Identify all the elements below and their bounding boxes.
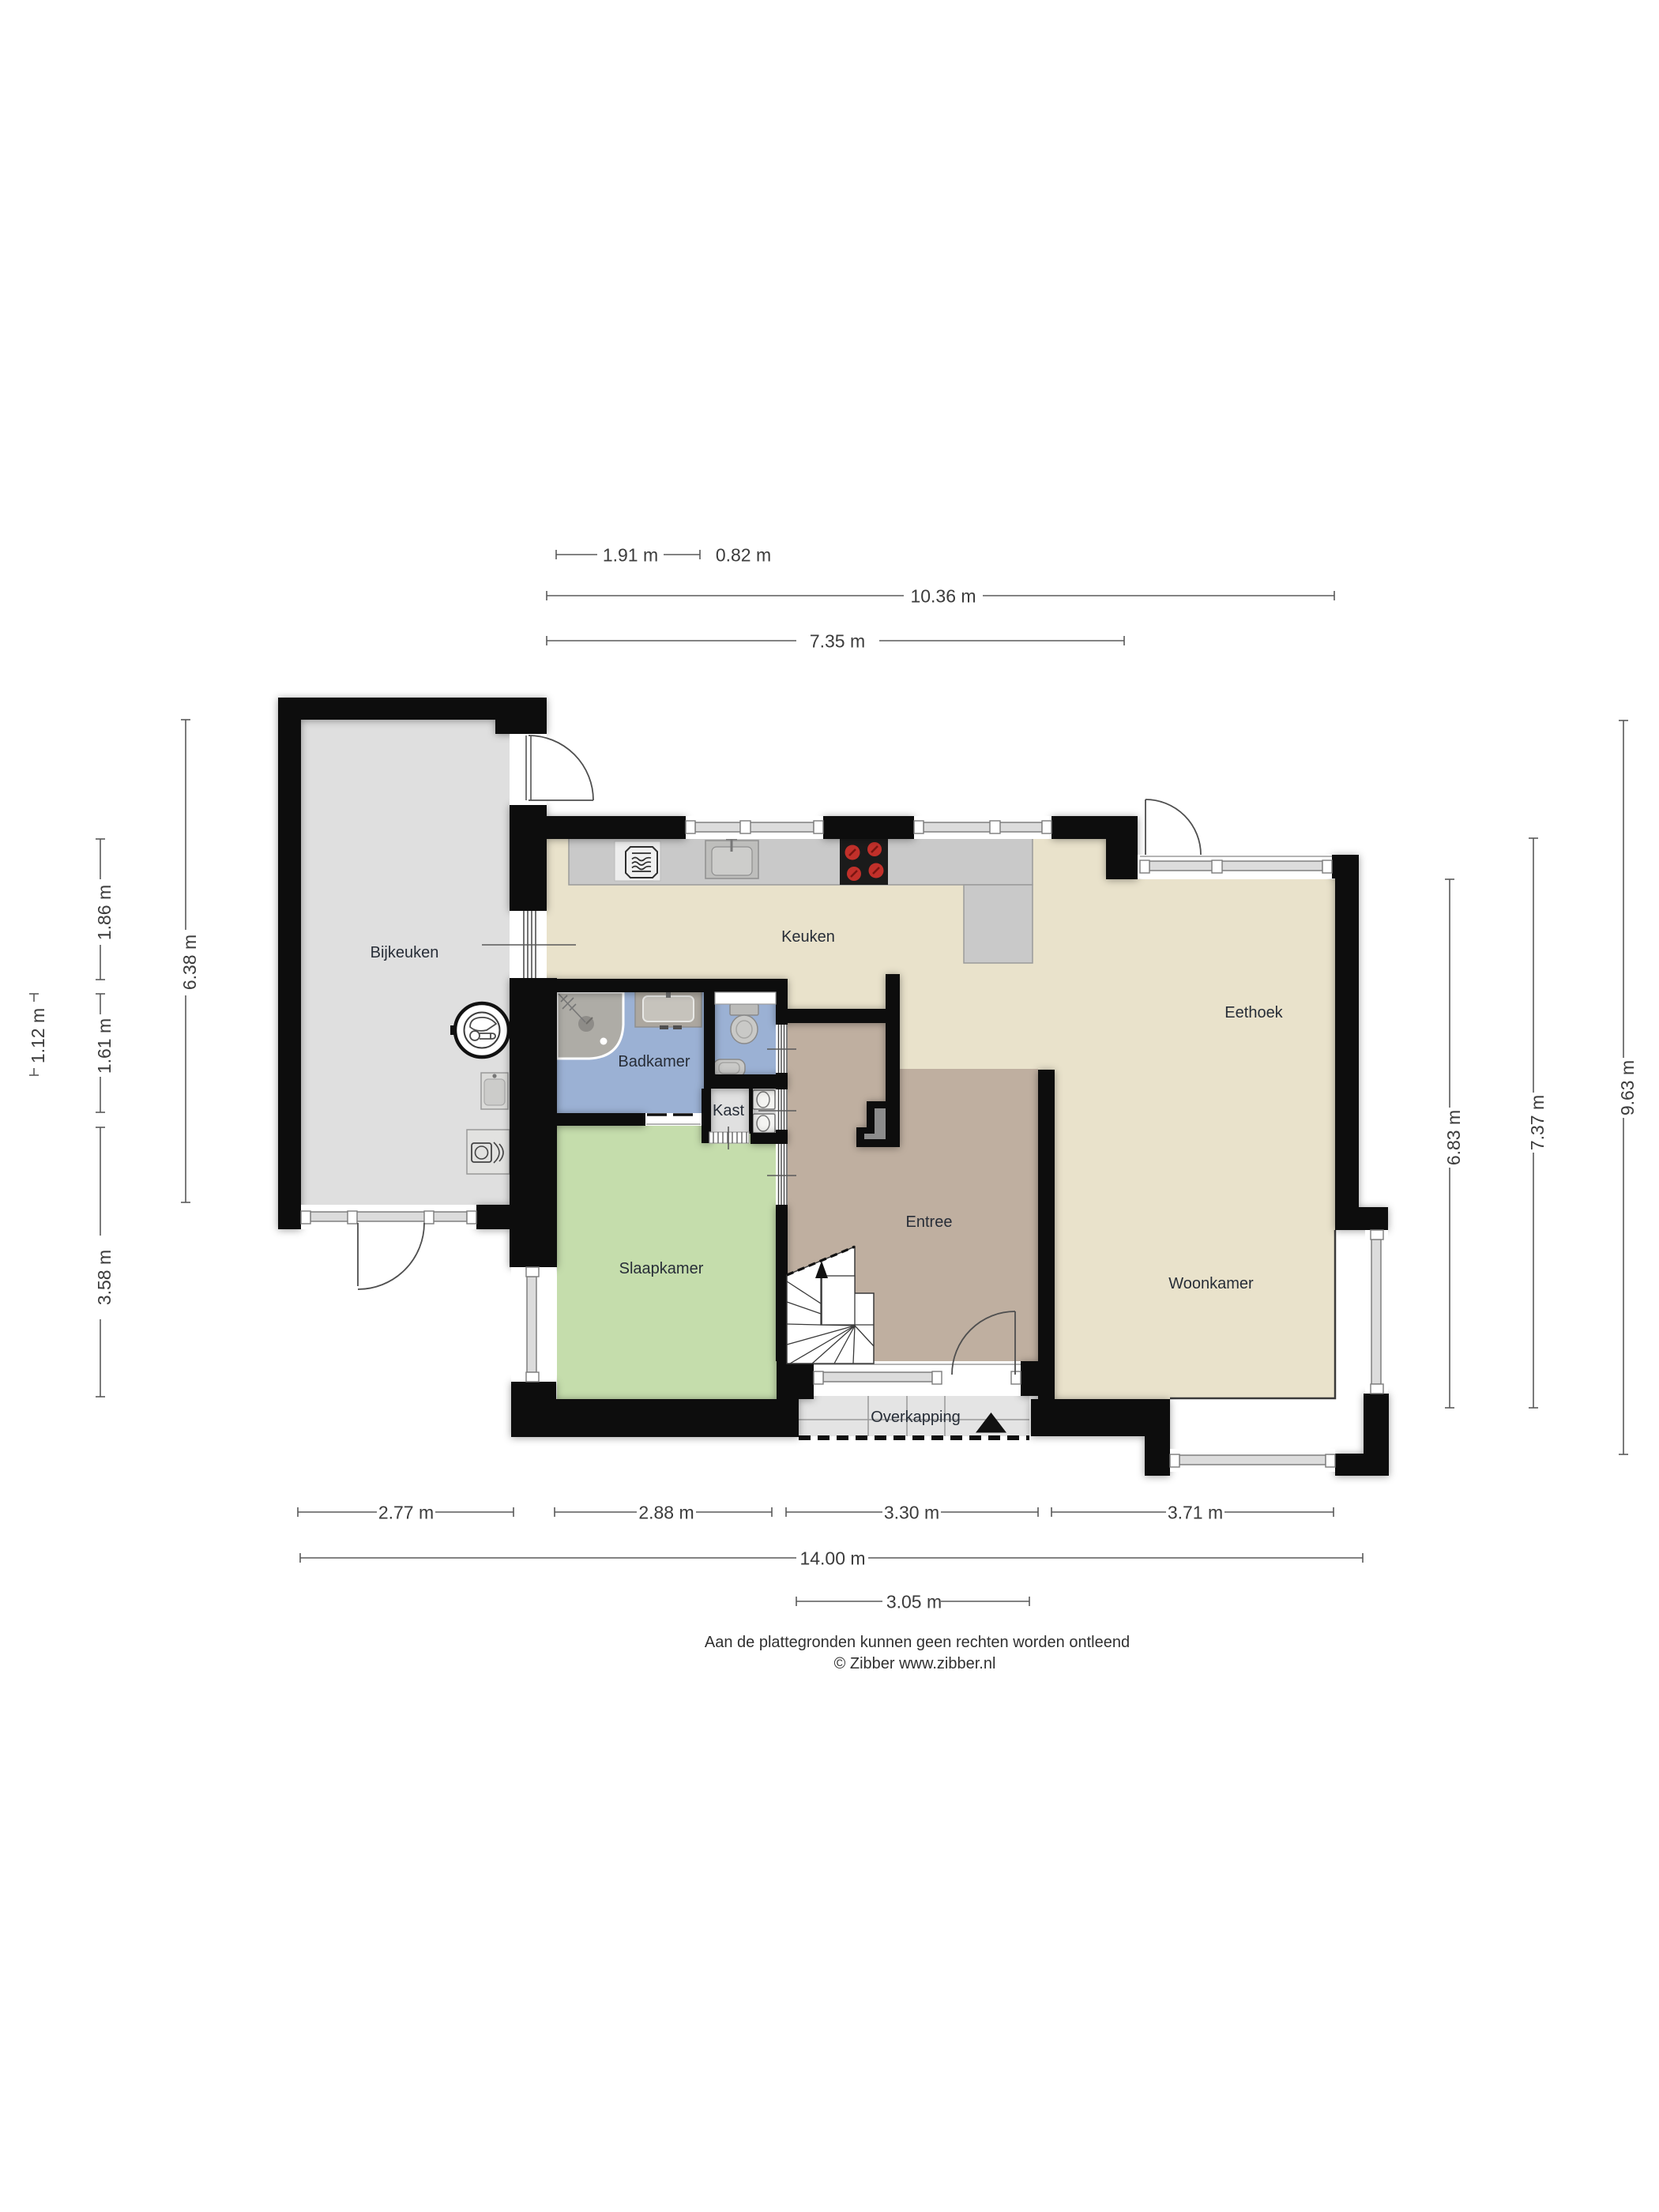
svg-text:Bijkeuken: Bijkeuken [371, 944, 439, 961]
svg-text:Keuken: Keuken [781, 928, 835, 946]
svg-text:Aan de plattegronden kunnen ge: Aan de plattegronden kunnen geen rechten… [705, 1634, 1130, 1651]
svg-text:0.82 m: 0.82 m [716, 545, 771, 566]
svg-text:7.37 m: 7.37 m [1527, 1095, 1548, 1150]
svg-text:10.36 m: 10.36 m [910, 586, 976, 607]
svg-text:Entree: Entree [906, 1213, 953, 1231]
svg-text:2.88 m: 2.88 m [638, 1503, 694, 1523]
svg-text:3.71 m: 3.71 m [1168, 1503, 1223, 1523]
svg-text:1.61 m: 1.61 m [94, 1018, 115, 1074]
svg-text:9.63 m: 9.63 m [1617, 1060, 1638, 1115]
svg-text:3.30 m: 3.30 m [884, 1503, 939, 1523]
svg-text:6.83 m: 6.83 m [1443, 1110, 1464, 1165]
svg-text:Woonkamer: Woonkamer [1168, 1275, 1254, 1292]
svg-text:Overkapping: Overkapping [871, 1409, 960, 1426]
svg-text:3.58 m: 3.58 m [94, 1250, 115, 1305]
svg-text:1.91 m: 1.91 m [603, 545, 658, 566]
svg-text:1.12 m: 1.12 m [28, 1008, 48, 1063]
svg-text:2.77 m: 2.77 m [378, 1503, 434, 1523]
svg-text:Eethoek: Eethoek [1224, 1004, 1283, 1021]
svg-text:Badkamer: Badkamer [618, 1053, 690, 1070]
svg-text:14.00 m: 14.00 m [799, 1548, 865, 1569]
svg-text:1.86 m: 1.86 m [94, 885, 115, 940]
svg-text:6.38 m: 6.38 m [179, 935, 200, 990]
svg-text:7.35 m: 7.35 m [810, 631, 865, 652]
svg-text:3.05 m: 3.05 m [886, 1592, 942, 1612]
svg-text:Kast: Kast [713, 1102, 744, 1119]
svg-text:© Zibber www.zibber.nl: © Zibber www.zibber.nl [834, 1655, 996, 1672]
svg-text:Slaapkamer: Slaapkamer [619, 1260, 704, 1277]
